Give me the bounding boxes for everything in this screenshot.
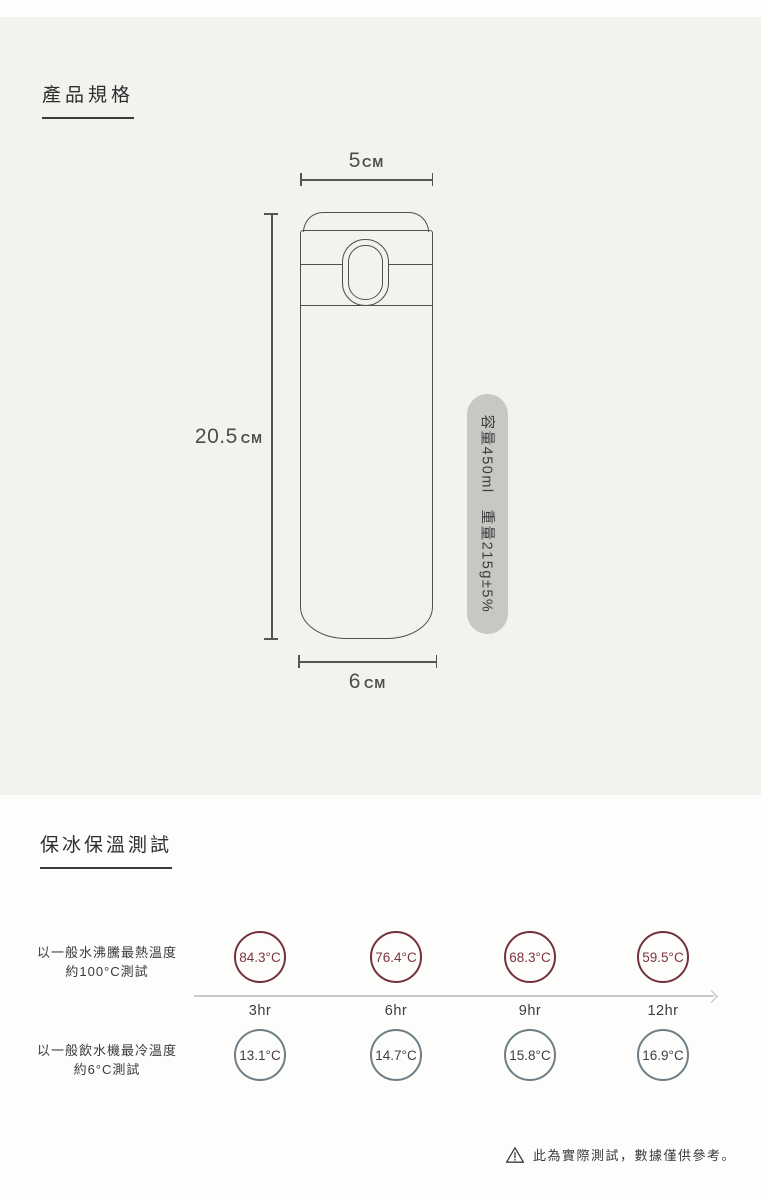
capacity-weight-text: 容量450ml 重量215g±5% <box>477 415 498 614</box>
time-label-3hr: 3hr <box>225 1003 295 1019</box>
disclaimer-note: 此為實際測試，數據僅供參考。 <box>505 1145 736 1164</box>
top-measure-tick-right <box>432 173 434 186</box>
cold-temp-6hr: 14.7°C <box>370 1029 422 1081</box>
bottom-width-value: 6 <box>349 670 361 693</box>
time-label-6hr: 6hr <box>361 1003 431 1019</box>
specs-title: 產品規格 <box>42 80 134 119</box>
cold-temp-3hr: 13.1°C <box>234 1029 286 1081</box>
hot-row-label-line2: 約100°C測試 <box>22 962 192 981</box>
top-width-unit: CM <box>362 155 384 170</box>
warning-icon <box>505 1146 525 1164</box>
cold-row-label: 以一般飲水機最冷溫度 約6°C測試 <box>22 1041 192 1079</box>
height-value: 20.5 <box>195 425 238 448</box>
cold-row-label-line2: 約6°C測試 <box>22 1060 192 1079</box>
disclaimer-text: 此為實際測試，數據僅供參考。 <box>533 1145 736 1164</box>
height-measure-tick-top <box>264 213 278 215</box>
specs-section: 產品規格 5CM 20.5CM 6CM 容量450ml 重量215g±5 <box>0 17 761 795</box>
height-measure-line <box>271 213 273 639</box>
hot-row-label: 以一般水沸騰最熱溫度 約100°C測試 <box>22 943 192 981</box>
top-width-label: 5CM <box>300 149 433 173</box>
cold-temp-9hr: 15.8°C <box>504 1029 556 1081</box>
product-spec-page: 產品規格 5CM 20.5CM 6CM 容量450ml 重量215g±5 <box>0 0 761 1200</box>
hot-temp-3hr: 84.3°C <box>234 931 286 983</box>
bottom-width-unit: CM <box>364 676 386 691</box>
capacity-weight-badge: 容量450ml 重量215g±5% <box>467 394 508 634</box>
hot-row-label-line1: 以一般水沸騰最熱溫度 <box>22 943 192 962</box>
top-measure-tick-left <box>300 173 302 186</box>
bottom-measure-line <box>298 661 437 663</box>
time-label-9hr: 9hr <box>495 1003 565 1019</box>
hot-temp-6hr: 76.4°C <box>370 931 422 983</box>
bottom-measure-tick-right <box>436 655 438 668</box>
cold-temp-12hr: 16.9°C <box>637 1029 689 1081</box>
top-width-value: 5 <box>349 149 361 172</box>
bottom-width-label: 6CM <box>298 670 437 694</box>
hot-temp-9hr: 68.3°C <box>504 931 556 983</box>
hot-temp-12hr: 59.5°C <box>637 931 689 983</box>
cold-row-label-line1: 以一般飲水機最冷溫度 <box>22 1041 192 1060</box>
height-measure-tick-bottom <box>264 638 278 640</box>
height-unit: CM <box>241 431 263 446</box>
bottom-measure-tick-left <box>298 655 300 668</box>
bottle-push-button-inner <box>348 245 383 300</box>
time-axis-line <box>194 995 714 997</box>
top-measure-line <box>300 179 433 181</box>
bottle-cap <box>303 212 429 232</box>
height-label: 20.5CM <box>178 425 263 449</box>
test-title: 保冰保溫測試 <box>40 830 172 869</box>
time-label-12hr: 12hr <box>628 1003 698 1019</box>
